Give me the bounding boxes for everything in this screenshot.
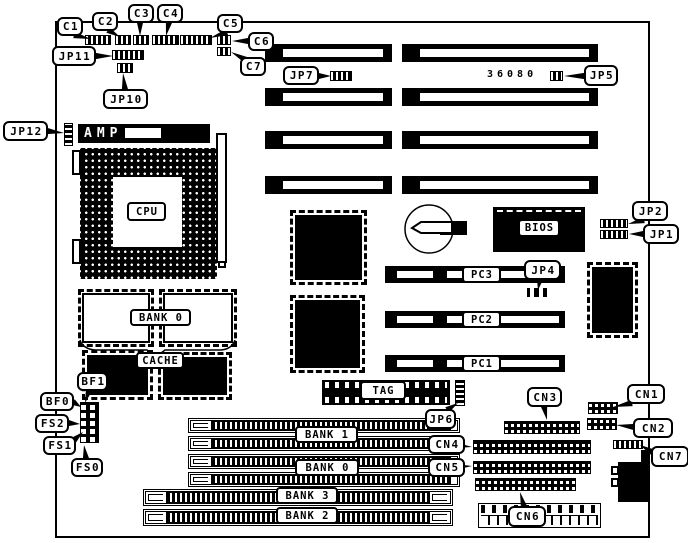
cn3-header [504,421,580,434]
c3-component [133,35,149,45]
label-bank0_cache: BANK 0 [130,309,191,326]
callout-jp12: JP12 [3,121,48,141]
callout-cn2: CN2 [633,418,673,438]
label-bank0: BANK 0 [295,459,359,476]
c4-component [152,35,179,45]
simm-latch [145,491,167,504]
callout-bf0: BF0 [40,392,74,411]
amp-brand-text: AMP [84,126,122,141]
simm-latch [190,456,212,467]
callout-jp6: JP6 [425,409,456,429]
simm-latch [429,491,451,504]
callout-jp11: JP11 [52,46,96,66]
callout-c2: C2 [92,12,118,31]
isa-slot-3-right [402,131,598,149]
chipset-chip-upper [295,215,362,280]
callout-cn5: CN5 [428,458,465,477]
keyboard-connector-riser [641,450,649,502]
callout-cn7: CN7 [651,446,688,467]
label-pc3: PC3 [462,266,501,283]
c1-component [85,35,111,45]
amp-label-window [125,128,161,138]
motherboard-diagram: AMP [0,0,688,543]
chipset-chip-lower [295,300,360,368]
simm-latch [190,438,212,449]
simm-latch [190,420,212,431]
bf-fs-jumper-block [80,402,99,443]
jp10-jumper [117,63,133,73]
label-bank2: BANK 2 [276,507,338,524]
jp7-jumper [330,71,352,81]
callout-jp10: JP10 [103,89,148,109]
cn7-connector [613,440,643,449]
c5-component [180,35,212,45]
jp4-jumper [527,288,547,297]
io-chip [592,267,633,333]
callout-fs1: FS1 [43,436,76,455]
callout-cn6: CN6 [508,506,546,527]
simm-latch [190,474,212,485]
callout-c5: C5 [217,14,243,33]
keyboard-connector-tab-2 [611,478,619,487]
simm-latch [145,511,167,524]
isa-slot-4-right [402,176,598,194]
socket-tab-lower [72,239,81,264]
jp5-jumper [550,71,563,81]
callout-c4: C4 [157,4,183,23]
label-bank3: BANK 3 [276,487,338,504]
jp11-jumper [112,50,144,60]
callout-fs2: FS2 [35,414,69,433]
isa-slot-2-left [265,88,392,106]
callout-bf1: BF1 [77,372,108,391]
isa-slot-3-left [265,131,392,149]
jp1-jumper [600,230,628,239]
jp12-jumper [64,123,73,146]
isa-slot-1-left [265,44,392,62]
callout-fs0: FS0 [71,458,103,477]
callout-cn1: CN1 [627,384,665,404]
isa-slot-1-right [402,44,598,62]
label-cache: CACHE [136,352,184,369]
callout-c1: C1 [57,17,83,36]
zif-lever-foot [218,261,226,268]
label-tag: TAG [360,381,406,400]
simm-latch [429,511,451,524]
keyboard-connector-tab-1 [611,466,619,475]
callout-jp4: JP4 [524,260,561,280]
label-bank1: BANK 1 [295,426,358,443]
cn6-header [475,478,576,491]
isa-slot-4-left [265,176,392,194]
c7-component [217,47,231,56]
callout-c3: C3 [128,4,154,23]
callout-jp1: JP1 [643,224,679,244]
c6-component [217,35,231,45]
callout-c7: C7 [240,57,266,76]
cn2-header [587,418,617,430]
jp6-jumper [455,380,465,406]
part-number: 36080 [487,69,537,80]
callout-cn4: CN4 [428,435,465,454]
isa-slot-2-right [402,88,598,106]
callout-cn3: CN3 [527,387,562,407]
cn4-header [473,440,591,454]
cn1-header [588,402,618,414]
label-bios: BIOS [518,219,560,237]
callout-c6: C6 [248,32,274,51]
label-cpu: CPU [127,202,166,221]
jp2-jumper [600,219,628,228]
callout-jp2: JP2 [632,201,668,221]
label-pc2: PC2 [462,311,501,328]
cn5-header [473,461,591,474]
c2-component [115,35,131,45]
zif-lever [216,133,227,263]
socket-tab-upper [72,150,81,175]
callout-jp7: JP7 [283,66,319,85]
callout-jp5: JP5 [584,65,618,86]
label-pc1: PC1 [462,355,501,372]
